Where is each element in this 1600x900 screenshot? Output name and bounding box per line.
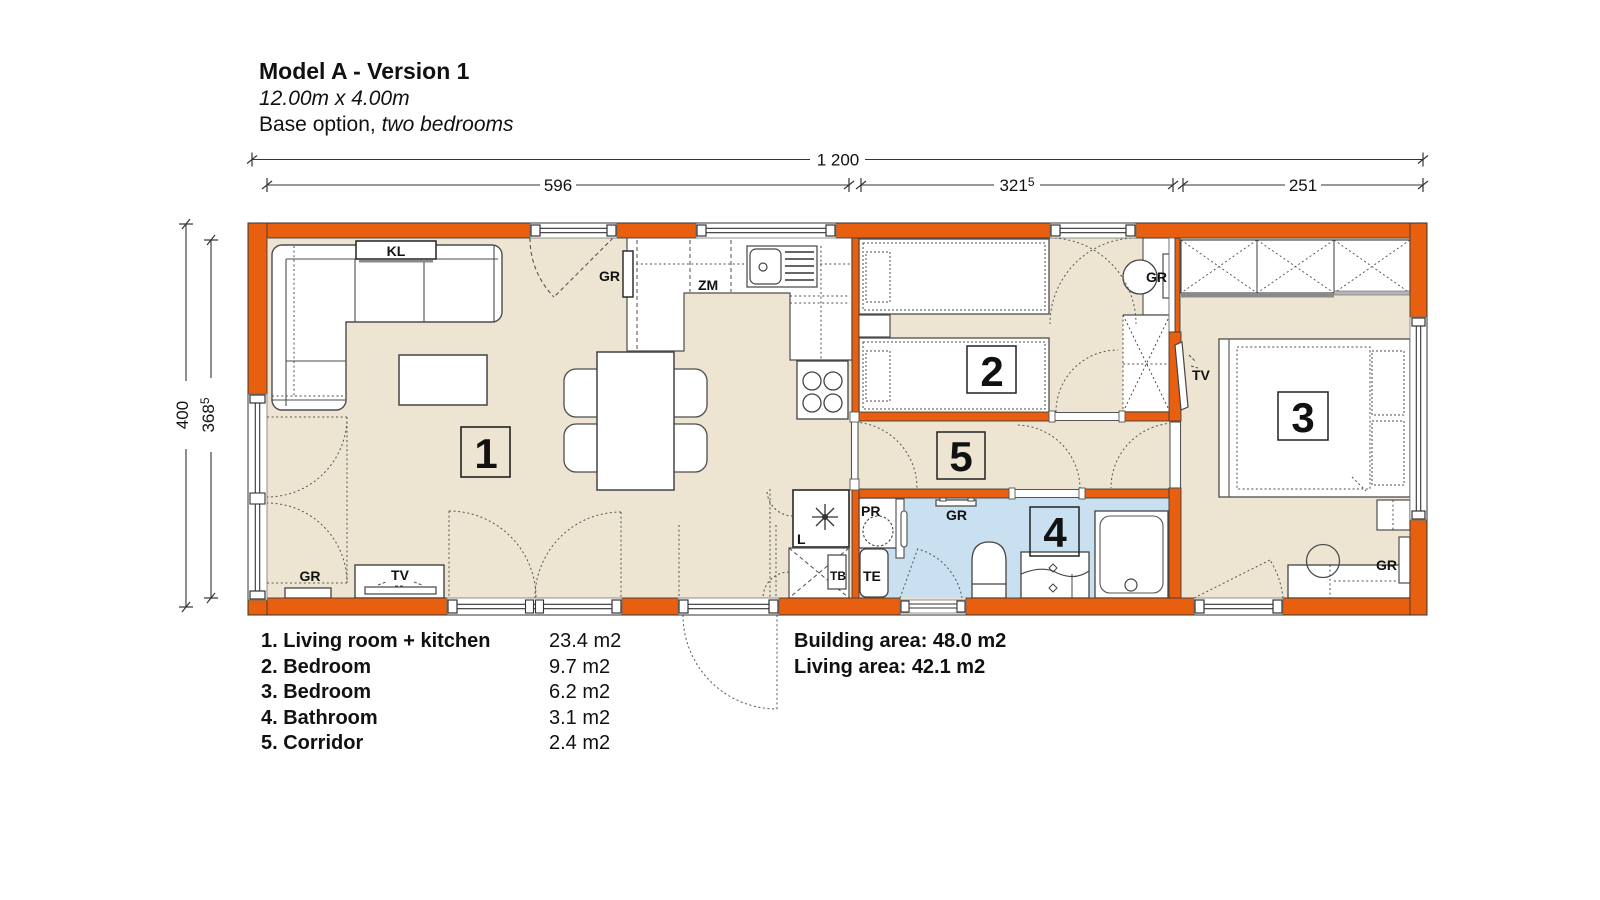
svg-text:GR: GR (599, 268, 620, 284)
svg-text:6.2 m2: 6.2 m2 (549, 681, 610, 703)
svg-text:4. Bathroom: 4. Bathroom (261, 707, 378, 729)
svg-text:GR: GR (1146, 269, 1167, 285)
svg-text:4: 4 (1043, 509, 1067, 556)
svg-text:TV: TV (1192, 367, 1211, 383)
svg-text:3. Bedroom: 3. Bedroom (261, 681, 371, 703)
svg-text:TE: TE (863, 568, 881, 584)
svg-text:12.00m x 4.00m: 12.00m x 4.00m (259, 87, 410, 110)
svg-text:3: 3 (1291, 394, 1314, 441)
svg-text:Base option, two bedrooms: Base option, two bedrooms (259, 113, 514, 136)
svg-text:GR: GR (946, 507, 967, 523)
svg-text:Building area: 48.0 m2: Building area: 48.0 m2 (794, 630, 1006, 652)
svg-text:596: 596 (544, 176, 572, 195)
svg-text:ZM: ZM (698, 277, 718, 293)
svg-text:1 200: 1 200 (817, 151, 860, 170)
svg-text:5. Corridor: 5. Corridor (261, 732, 363, 754)
svg-text:KL: KL (387, 243, 406, 259)
svg-text:251: 251 (1289, 176, 1317, 195)
svg-text:3.1 m2: 3.1 m2 (549, 707, 610, 729)
svg-text:PR: PR (861, 503, 880, 519)
svg-text:TV: TV (391, 567, 410, 583)
svg-text:2. Bedroom: 2. Bedroom (261, 656, 371, 678)
svg-text:23.4 m2: 23.4 m2 (549, 630, 621, 652)
svg-text:L: L (797, 531, 806, 547)
svg-text:GR: GR (300, 568, 321, 584)
svg-text:GR: GR (1376, 557, 1397, 573)
svg-text:1: 1 (474, 430, 497, 477)
svg-text:9.7 m2: 9.7 m2 (549, 656, 610, 678)
svg-text:TB: TB (830, 569, 846, 583)
svg-text:2: 2 (980, 348, 1003, 395)
svg-text:Living area: 42.1 m2: Living area: 42.1 m2 (794, 656, 985, 678)
svg-text:400: 400 (173, 401, 192, 429)
svg-text:1. Living room + kitchen: 1. Living room + kitchen (261, 630, 491, 652)
svg-text:5: 5 (949, 433, 972, 480)
svg-text:Model A - Version 1: Model A - Version 1 (259, 58, 470, 84)
svg-text:2.4 m2: 2.4 m2 (549, 732, 610, 754)
